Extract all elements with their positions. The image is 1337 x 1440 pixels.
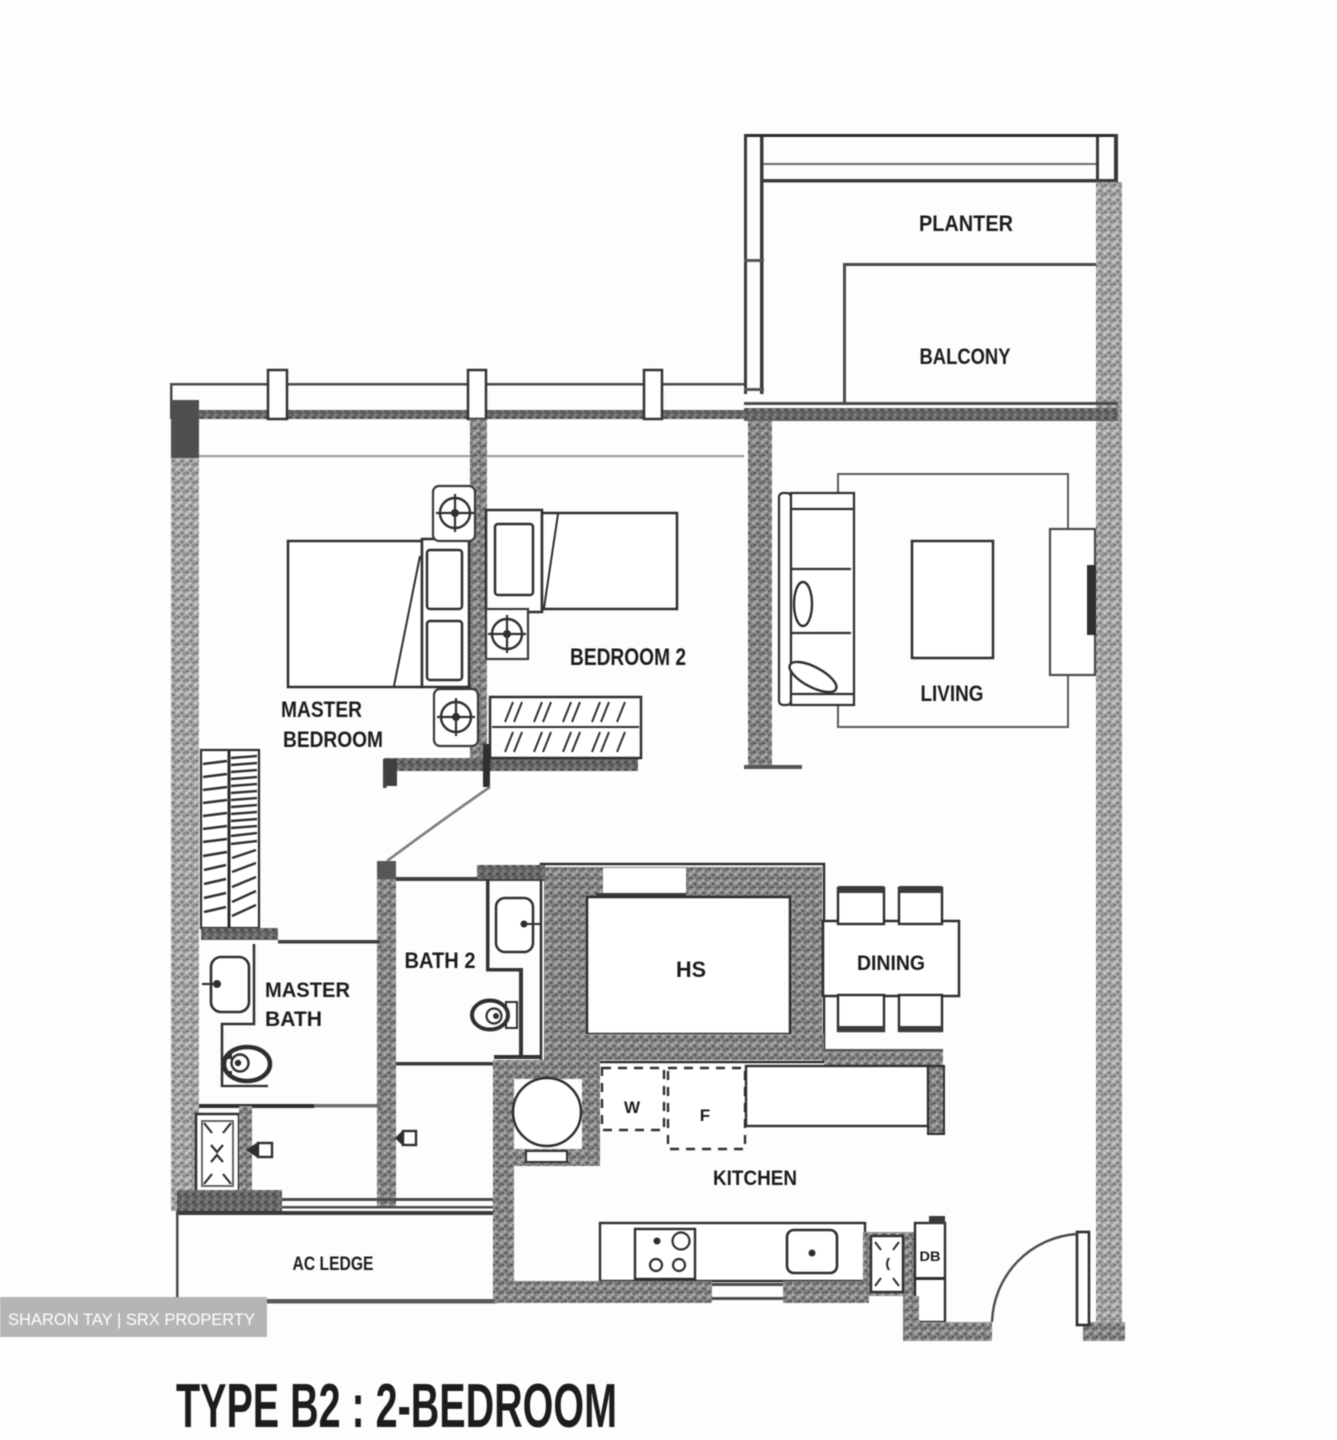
svg-text:TYPE B2 : 2-BEDROOM: TYPE B2 : 2-BEDROOM	[176, 1372, 617, 1440]
svg-text:PLANTER: PLANTER	[919, 211, 1013, 236]
svg-text:HS: HS	[676, 957, 706, 982]
svg-text:BATH: BATH	[265, 1008, 322, 1031]
svg-text:MASTER: MASTER	[281, 697, 362, 722]
svg-text:MASTER: MASTER	[265, 979, 350, 1002]
svg-text:W: W	[624, 1098, 641, 1117]
svg-text:SHARON TAY | SRX PROPERTY: SHARON TAY | SRX PROPERTY	[8, 1310, 255, 1329]
svg-text:BEDROOM 2: BEDROOM 2	[570, 644, 686, 671]
svg-text:F: F	[700, 1106, 710, 1125]
svg-text:LIVING: LIVING	[921, 681, 984, 706]
svg-text:BEDROOM: BEDROOM	[283, 727, 383, 752]
svg-text:DINING: DINING	[857, 952, 925, 975]
svg-text:AC LEDGE: AC LEDGE	[293, 1254, 374, 1275]
svg-text:KITCHEN: KITCHEN	[713, 1167, 797, 1190]
svg-text:BALCONY: BALCONY	[920, 344, 1011, 369]
svg-text:DB: DB	[920, 1248, 941, 1264]
svg-text:BATH 2: BATH 2	[405, 948, 476, 973]
